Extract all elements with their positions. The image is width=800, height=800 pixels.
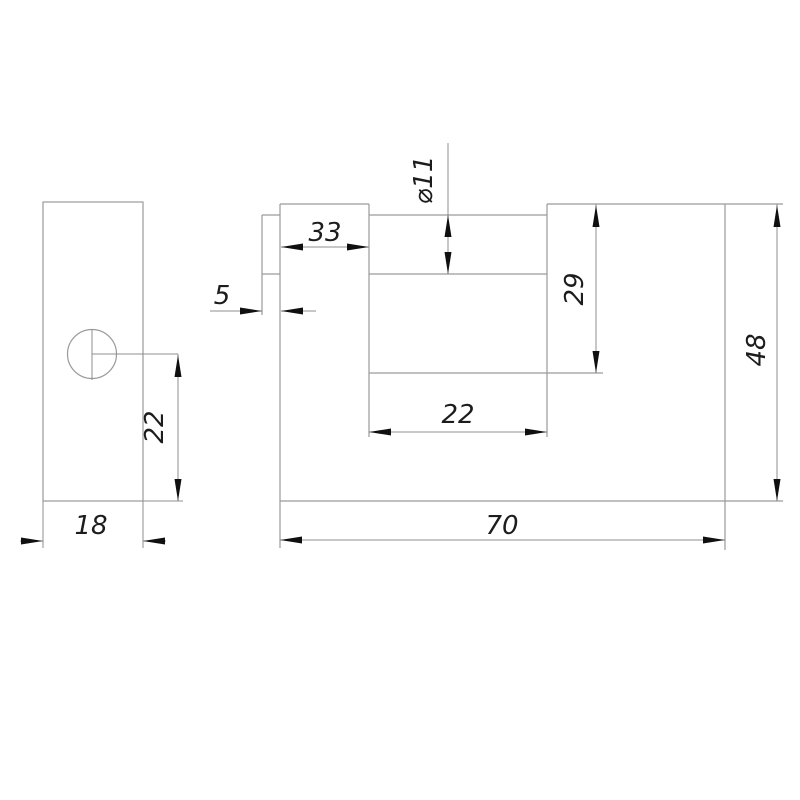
dim-label-slot-depth: 29 <box>560 272 590 305</box>
arrowhead-right <box>21 538 43 545</box>
front-view: 5 33 ⌀11 29 22 <box>210 143 783 550</box>
arrowhead-down <box>175 479 182 501</box>
arrowhead-left <box>281 308 303 315</box>
arrowhead-right <box>525 429 547 436</box>
dim-label-body-width: 70 <box>485 511 518 541</box>
arrowhead-right <box>240 308 262 315</box>
arrowhead-right <box>347 244 369 251</box>
arrowhead-up <box>593 205 600 227</box>
dimension-body-height: 48 <box>742 204 781 501</box>
dim-label-shackle-diameter: ⌀11 <box>409 156 439 205</box>
arrowhead-left <box>369 429 391 436</box>
dim-label-left-block-width: 33 <box>308 218 341 248</box>
arrowhead-left <box>280 537 302 544</box>
dimension-side-hole-offset: 22 <box>140 354 182 501</box>
dim-label-shackle-protrusion: 5 <box>214 281 231 311</box>
dimension-side-width: 18 <box>20 501 166 548</box>
arrowhead-down <box>774 479 781 501</box>
arrowhead-up <box>445 215 452 237</box>
dimension-left-block-width: 33 <box>281 218 369 251</box>
arrowhead-up <box>175 355 182 377</box>
technical-drawing: 22 18 <box>0 0 800 800</box>
dimension-shackle-protrusion: 5 <box>210 281 316 315</box>
dimension-slot-depth: 29 <box>560 204 600 373</box>
dim-label-side-hole-offset: 22 <box>140 410 170 443</box>
drawing-sheet: 22 18 <box>0 0 800 800</box>
arrowhead-right <box>703 537 725 544</box>
arrowhead-left <box>281 244 303 251</box>
dim-label-slot-width: 22 <box>441 400 474 430</box>
arrowhead-down <box>593 351 600 373</box>
arrowhead-up <box>774 205 781 227</box>
arrowhead-left <box>143 538 165 545</box>
dim-label-body-height: 48 <box>742 333 772 366</box>
side-view-outline <box>43 202 143 501</box>
dim-label-side-width: 18 <box>74 511 107 541</box>
dimension-body-width: 70 <box>280 511 725 544</box>
arrowhead-down <box>445 252 452 274</box>
dimension-slot-width: 22 <box>369 400 547 436</box>
side-view: 22 18 <box>20 202 183 548</box>
dimension-shackle-diameter: ⌀11 <box>409 143 452 274</box>
